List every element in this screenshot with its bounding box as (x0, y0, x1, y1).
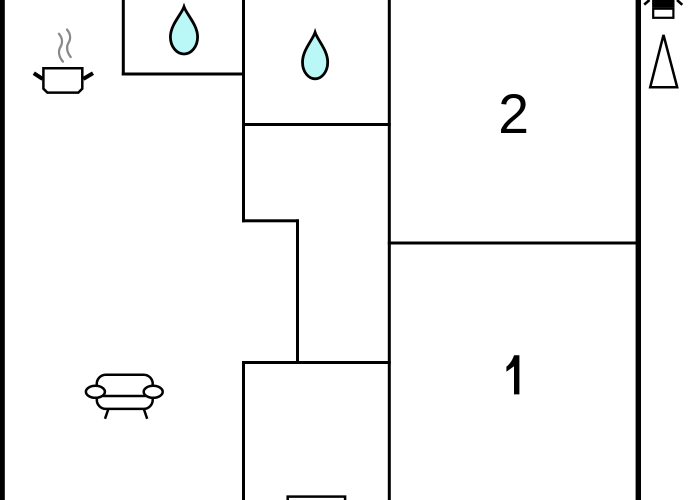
svg-text:2: 2 (498, 83, 529, 145)
